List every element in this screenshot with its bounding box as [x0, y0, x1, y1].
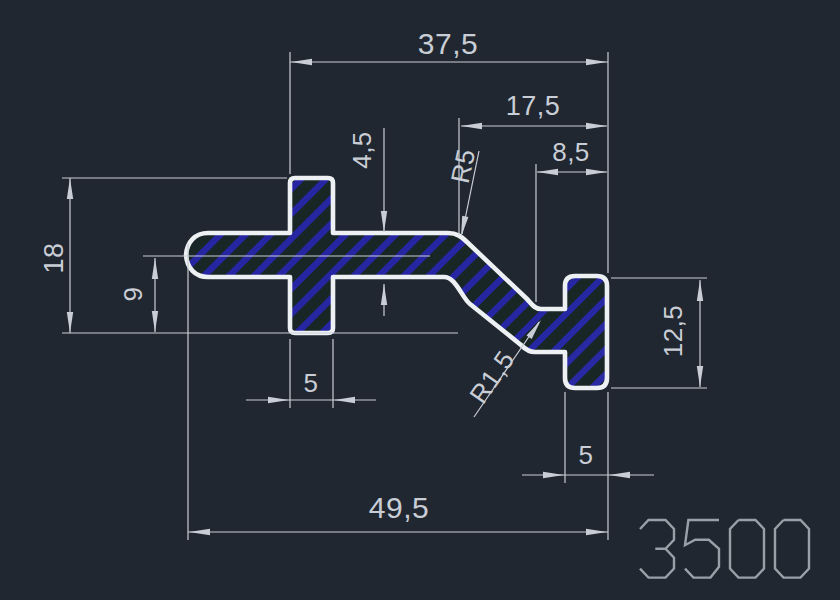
- dim-label-right-height: 12,5: [660, 305, 686, 358]
- dim-4-5: [381, 128, 387, 316]
- dim-label-upper-right-width: 17,5: [506, 93, 561, 120]
- cad-drawing-viewport: 37,5 17,5 8,5 4,5 R5 18 9 5 R1,5 12,5 5 …: [0, 0, 840, 600]
- dim-label-right-leg-width: 5: [579, 442, 594, 468]
- dim-label-leg-width: 5: [304, 370, 319, 396]
- section-hatch: [0, 140, 840, 480]
- dim-label-top-radius: R5: [447, 147, 480, 186]
- dim-label-wall-thickness: 4,5: [349, 131, 375, 169]
- dim-17-5: [459, 118, 607, 235]
- dim-label-lower-height: 9: [120, 287, 146, 302]
- dim-label-top-width: 37,5: [418, 29, 478, 59]
- dim-label-total-width: 49,5: [369, 493, 429, 523]
- drawing-number-stamp: [636, 516, 836, 586]
- dim-label-total-height: 18: [41, 242, 68, 273]
- dim-label-step-width: 8,5: [552, 139, 590, 165]
- profile-outline: [186, 178, 607, 388]
- dim-9: [152, 258, 158, 332]
